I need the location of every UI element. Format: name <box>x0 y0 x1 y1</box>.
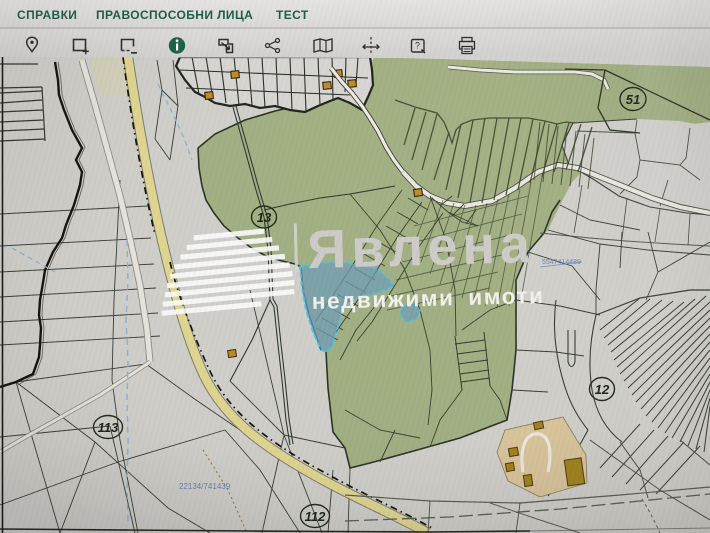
svg-text:Явлена: Явлена <box>307 214 536 280</box>
svg-text:?: ? <box>415 41 420 51</box>
svg-text:51: 51 <box>626 92 640 107</box>
svg-text:12: 12 <box>595 382 610 397</box>
svg-text:22134/741439: 22134/741439 <box>179 482 231 491</box>
svg-text:13: 13 <box>257 210 272 225</box>
svg-text:112: 112 <box>305 509 326 524</box>
svg-text:113: 113 <box>98 420 119 435</box>
